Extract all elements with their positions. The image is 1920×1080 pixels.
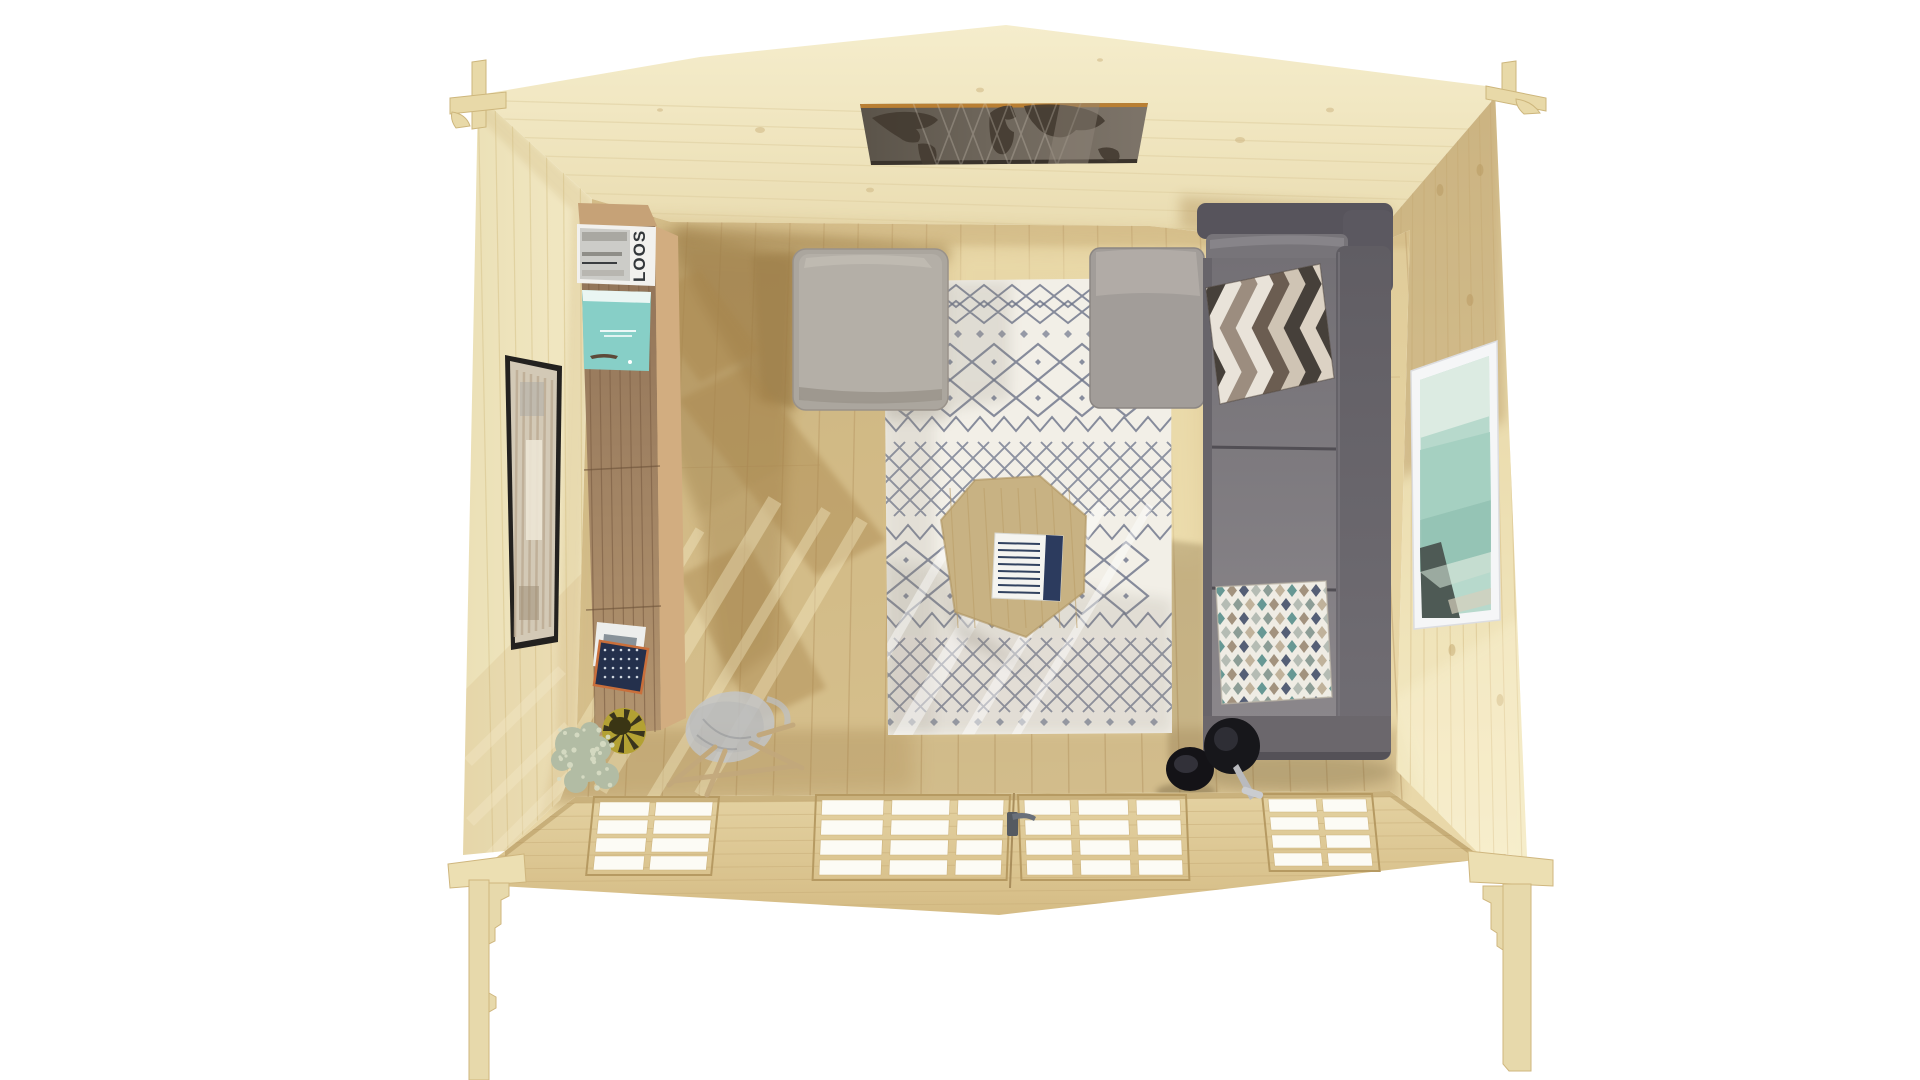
svg-text:LOOS: LOOS: [630, 230, 649, 282]
